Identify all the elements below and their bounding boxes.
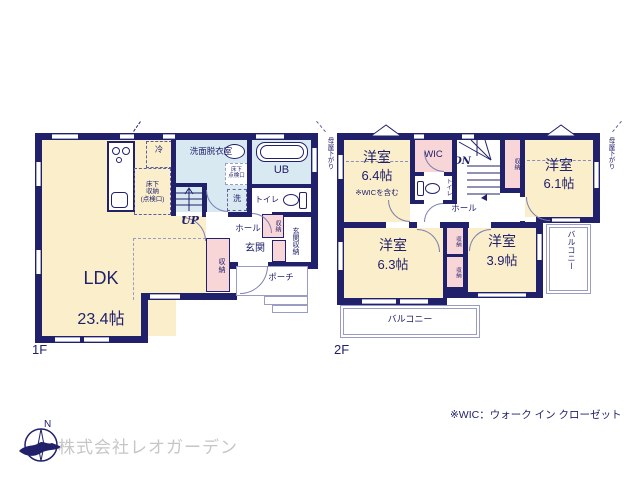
entrance-label: 玄関 xyxy=(235,243,275,254)
washroom-label: 洗面脱衣室 xyxy=(175,147,247,157)
bay-window-icon xyxy=(546,124,576,137)
room63-label: 洋室 xyxy=(361,238,425,254)
kitchen-sink-icon xyxy=(111,192,128,208)
window-marker xyxy=(256,134,284,139)
window-marker xyxy=(52,134,78,139)
fridge-label: 冷 xyxy=(146,146,172,155)
window-marker xyxy=(338,242,343,270)
storage-stairs-label: 収納 xyxy=(506,152,519,176)
window-marker xyxy=(478,293,526,297)
window-marker xyxy=(462,134,474,139)
ldk-size: 23.4帖 xyxy=(77,311,124,328)
porch-label: ポーチ xyxy=(258,273,304,283)
hall-label: ホール xyxy=(226,224,270,234)
porch-step xyxy=(272,305,308,313)
wic-label: WIC xyxy=(415,150,452,161)
door-arc xyxy=(424,203,443,222)
window-marker xyxy=(362,299,396,304)
window-marker xyxy=(55,337,80,342)
door-gap xyxy=(386,222,409,228)
moya-right-label: 母屋下がり xyxy=(602,137,614,189)
door-gap xyxy=(520,197,525,221)
ldk-name: LDK xyxy=(83,268,118,288)
window-marker xyxy=(120,134,134,139)
entrance-storage-label: 玄関収納 xyxy=(288,227,299,273)
floor-plan: LDK 23.4帖 冷 床下 収納 (点検口) 洗面脱衣室 床下 点検口 UB … xyxy=(0,0,640,480)
storage-ldk-label: 収納 xyxy=(211,253,225,279)
company-name: 株式会社レオガーデン xyxy=(58,438,298,457)
storage-hall-label: 収納 xyxy=(266,216,280,236)
door-gap xyxy=(417,222,440,228)
stove-burner-icon xyxy=(112,147,120,155)
balcony-bottom-label: バルコニー xyxy=(370,314,450,324)
stairs-up xyxy=(176,187,202,213)
bath-label: UB xyxy=(253,164,310,176)
stove-burner-icon xyxy=(116,157,122,163)
toilet-tank-icon xyxy=(417,181,424,196)
door-arc xyxy=(526,197,550,221)
window-marker xyxy=(552,218,580,222)
room39-label: 洋室 xyxy=(471,234,533,250)
bay-window-icon xyxy=(371,124,401,137)
room61-label: 洋室 xyxy=(531,158,587,174)
window-marker xyxy=(36,250,41,274)
window-marker xyxy=(400,299,428,304)
moya-left-label: 母屋下がり xyxy=(321,137,333,189)
hall2-label: ホール xyxy=(442,204,486,214)
window-marker xyxy=(414,134,424,139)
toilet-label: トイレ xyxy=(251,196,283,205)
room64-note: ※WICを含む xyxy=(339,189,415,197)
vent-tick xyxy=(133,121,141,131)
moya-tick xyxy=(316,121,326,132)
room39-size: 3.9帖 xyxy=(471,254,533,269)
balcony-right-label: バルコニー xyxy=(560,230,575,288)
bathtub-inner-line xyxy=(260,145,304,159)
stairs-down xyxy=(457,140,500,202)
stove-burner-icon xyxy=(122,147,130,155)
moya-tick xyxy=(612,121,622,132)
wall-segment xyxy=(252,184,311,188)
wall-segment xyxy=(500,188,525,193)
floor-hatch-label: 床下 点検口 xyxy=(225,167,248,179)
toilet2-label: トイレ xyxy=(441,178,451,202)
window-marker xyxy=(338,155,343,179)
wic-note: ※WIC：ウォーク イン クローゼット xyxy=(450,410,635,422)
washer-label: 洗 xyxy=(227,195,247,204)
toilet-bowl-icon xyxy=(283,194,299,206)
door-gap xyxy=(424,172,444,176)
storage-b-label: 収納 xyxy=(450,262,461,282)
room61-size: 6.1帖 xyxy=(531,177,587,192)
room64-label: 洋室 xyxy=(347,150,407,166)
floor1-label: 1F xyxy=(32,343,47,358)
ldk-label: LDK 23.4帖 xyxy=(46,248,156,329)
window-marker xyxy=(594,162,599,188)
window-marker xyxy=(36,162,41,186)
window-marker xyxy=(537,234,542,260)
window-marker xyxy=(312,148,317,172)
window-marker xyxy=(84,337,109,342)
stairs-up-label: UP xyxy=(175,215,205,227)
toilet-tank-icon xyxy=(299,192,307,209)
room64-size: 6.4帖 xyxy=(347,169,407,184)
stairs-down-label: DN xyxy=(449,156,475,167)
door-gap xyxy=(469,222,491,228)
compass-n-label: N xyxy=(44,419,51,430)
underfloor-storage-label: 床下 収納 (点検口) xyxy=(134,181,171,203)
door-gap xyxy=(206,212,228,217)
floor2-label: 2F xyxy=(334,343,349,358)
toilet-bowl-icon xyxy=(425,183,440,194)
room63-size: 6.3帖 xyxy=(361,258,425,273)
porch-step xyxy=(264,296,308,305)
storage-a-label: 収納 xyxy=(450,231,461,251)
window-marker xyxy=(163,134,175,139)
